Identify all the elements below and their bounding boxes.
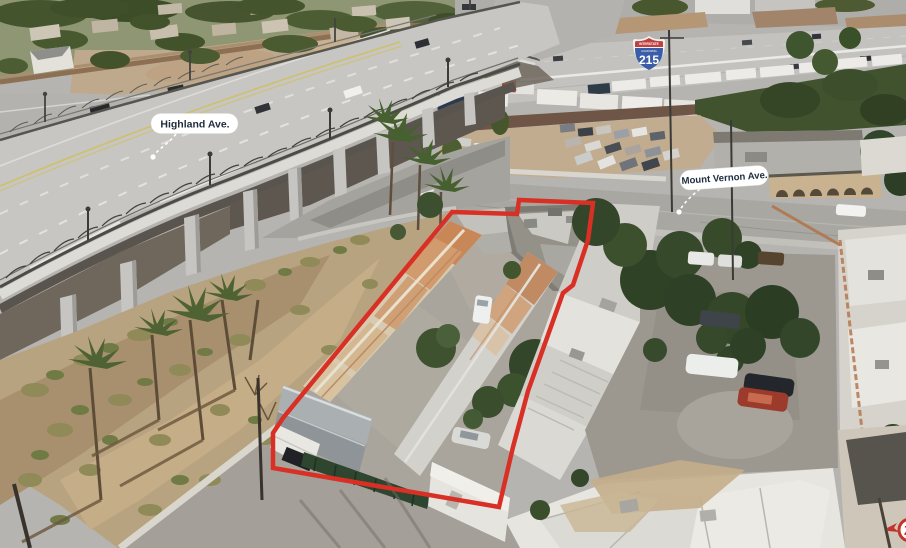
svg-text:INTERSTATE: INTERSTATE: [639, 42, 659, 46]
svg-text:215: 215: [639, 53, 659, 67]
svg-text:Highland Ave.: Highland Ave.: [160, 119, 229, 131]
